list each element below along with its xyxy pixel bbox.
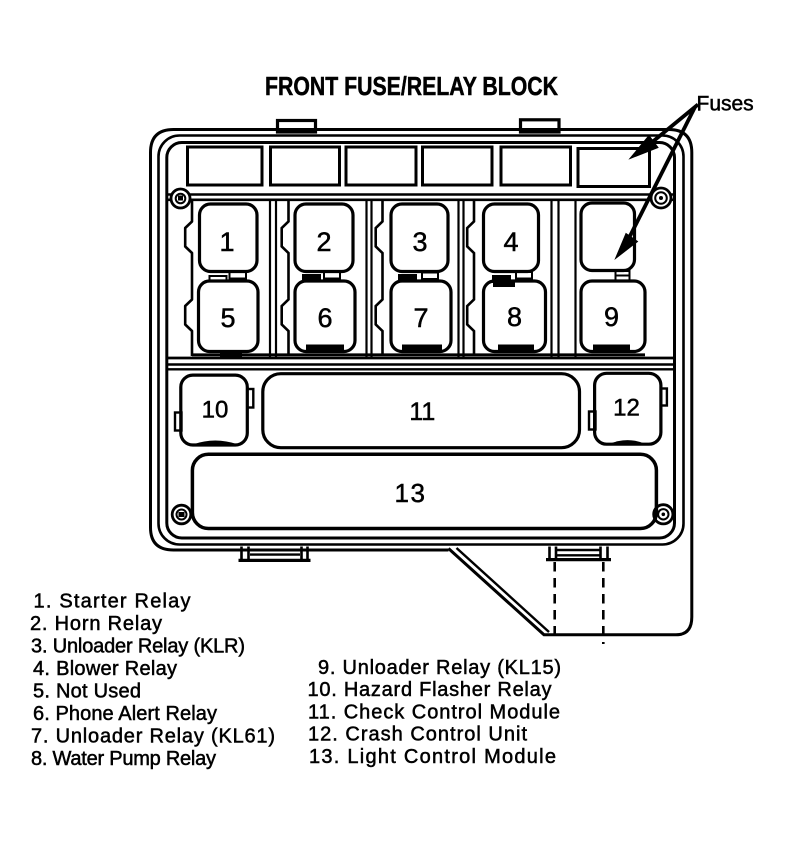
svg-text:8. Water Pump Relay: 8. Water Pump Relay [31,748,216,770]
svg-text:6: 6 [317,303,332,333]
svg-text:5. Not Used: 5. Not Used [33,681,141,703]
svg-text:10: 10 [202,397,229,424]
svg-text:1: 1 [219,227,234,257]
svg-text:1. Starter Relay: 1. Starter Relay [34,591,191,613]
svg-text:12: 12 [613,395,640,422]
svg-text:9. Unloader Relay (KL15): 9. Unloader Relay (KL15) [318,657,561,679]
svg-text:9: 9 [604,302,619,332]
svg-text:4. Blower Relay: 4. Blower Relay [33,658,177,680]
svg-text:6. Phone Alert Relay: 6. Phone Alert Relay [33,703,217,725]
svg-text:11. Check Control Module: 11. Check Control Module [308,702,560,724]
svg-text:12. Crash Control Unit: 12. Crash Control Unit [308,724,527,746]
svg-text:2. Horn Relay: 2. Horn Relay [30,613,162,635]
svg-text:4: 4 [503,227,518,257]
svg-text:13. Light Control Module: 13. Light Control Module [309,746,556,768]
svg-text:11: 11 [409,398,435,426]
svg-text:10. Hazard Flasher Relay: 10. Hazard Flasher Relay [308,679,552,701]
svg-text:8: 8 [507,302,522,332]
svg-text:Fuses: Fuses [697,93,754,116]
svg-text:7: 7 [413,303,428,333]
svg-text:3: 3 [412,227,427,257]
svg-text:2: 2 [316,227,331,257]
svg-text:3. Unloader Relay (KLR): 3. Unloader Relay (KLR) [31,636,245,658]
svg-text:5: 5 [220,303,235,333]
svg-text:13: 13 [395,478,427,508]
svg-text:FRONT FUSE/RELAY BLOCK: FRONT FUSE/RELAY BLOCK [265,71,558,101]
svg-text:7. Unloader Relay (KL61): 7. Unloader Relay (KL61) [31,726,275,748]
